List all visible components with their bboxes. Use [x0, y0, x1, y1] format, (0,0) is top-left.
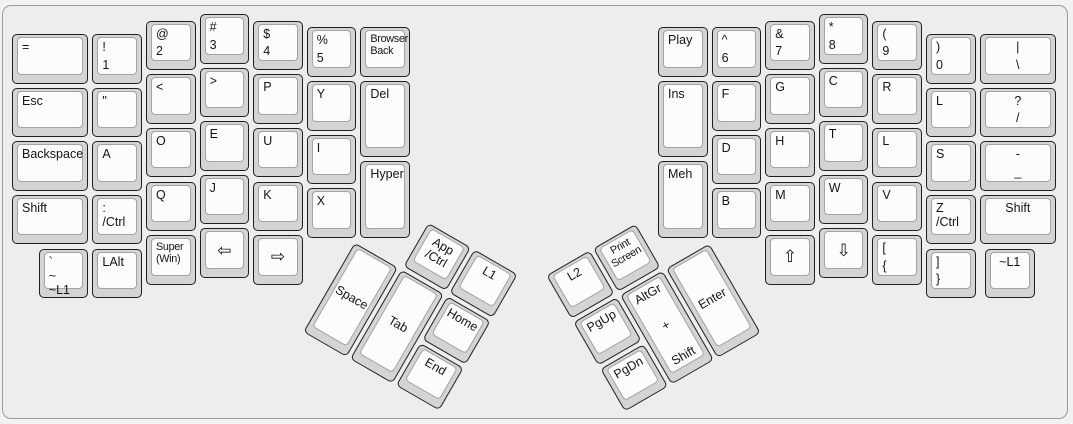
key-label: ⇨	[271, 247, 285, 266]
key-label: Meh	[668, 167, 692, 181]
key-backspace-face: Backspace	[17, 144, 83, 182]
key-l-middle[interactable]: L	[872, 128, 922, 178]
key-pipe-backslash-face: |\	[985, 37, 1051, 75]
key-7[interactable]: &7	[765, 21, 815, 71]
key-rbracket-brace-face: ]}	[931, 252, 971, 290]
key-label: H	[775, 134, 784, 148]
key-right-shift[interactable]: Shift	[980, 195, 1056, 245]
key-colon-ctrl-face: :/Ctrl	[97, 198, 137, 236]
key-label: (	[882, 27, 886, 41]
key-label: `	[49, 255, 53, 269]
key-left-shift[interactable]: Shift	[12, 195, 88, 245]
key-m-face: M	[770, 185, 810, 223]
key-s[interactable]: S	[926, 141, 976, 191]
key-lbracket-brace[interactable]: [{	[872, 235, 922, 285]
key-label: C	[829, 74, 838, 88]
key-6[interactable]: ^6	[712, 27, 762, 77]
key-x[interactable]: X	[307, 188, 357, 238]
key-q-face: Q	[151, 185, 191, 223]
key-arrow-up-face: ⇧	[770, 238, 810, 276]
key-label: %	[317, 33, 328, 47]
key-right-shift-face: Shift	[985, 198, 1051, 236]
key-p[interactable]: P	[253, 74, 303, 124]
key-3-face: #3	[205, 17, 245, 55]
key-label: ^	[722, 33, 728, 47]
key-label: +	[659, 317, 672, 333]
key-grave-l1-face: `~~L1	[44, 252, 84, 290]
key-arrow-up[interactable]: ⇧	[765, 235, 815, 285]
key-u[interactable]: U	[253, 128, 303, 178]
key-label: Ins	[668, 87, 685, 101]
key-h-face: H	[770, 131, 810, 169]
key-label: B	[722, 194, 730, 208]
key-play-face: Play	[663, 30, 703, 68]
key-o-face: O	[151, 131, 191, 169]
key-label: 9	[882, 44, 889, 58]
key-x-face: X	[312, 191, 352, 229]
key-label: |	[1016, 40, 1019, 54]
key-label: ~	[49, 269, 56, 283]
key-label: \	[1016, 58, 1019, 72]
key-r-face: R	[877, 77, 917, 115]
key-label: E	[210, 127, 218, 141]
key-w[interactable]: W	[819, 175, 869, 225]
key-meh-face: Meh	[663, 164, 703, 228]
key-esc-face: Esc	[17, 91, 83, 129]
key-a[interactable]: A	[92, 141, 142, 191]
key-meh[interactable]: Meh	[658, 161, 708, 237]
key-q[interactable]: Q	[146, 182, 196, 232]
key-label: _	[1014, 165, 1021, 179]
key-del[interactable]: Del	[360, 81, 410, 157]
key-label: Back	[370, 45, 393, 57]
key-tilde-l1[interactable]: ~L1	[985, 249, 1035, 299]
key-f-face: F	[717, 84, 757, 122]
key-lalt-face: LAlt	[97, 252, 137, 290]
key-w-face: W	[824, 178, 864, 216]
key-label: 5	[317, 51, 324, 65]
key-c-face: C	[824, 71, 864, 109]
key-label: *	[829, 20, 834, 34]
key-label: M	[775, 188, 785, 202]
key-p-face: P	[258, 77, 298, 115]
key-m[interactable]: M	[765, 182, 815, 232]
key-l-upper[interactable]: L	[926, 88, 976, 138]
key-i-face: I	[312, 138, 352, 176]
key-tilde-l1-face: ~L1	[990, 252, 1030, 290]
key-label: A	[102, 147, 110, 161]
key-label: )	[936, 40, 940, 54]
key-hyper[interactable]: Hyper	[360, 161, 410, 237]
key-label: :	[102, 201, 105, 215]
key-label: /Ctrl	[102, 215, 125, 229]
key-5-face: %5	[312, 30, 352, 68]
key-label: ⇩	[836, 241, 850, 260]
key-label: 8	[829, 38, 836, 52]
key-label: Super	[156, 241, 183, 253]
key-d-face: D	[717, 138, 757, 176]
key-g[interactable]: G	[765, 74, 815, 124]
key-greater-than[interactable]: >	[200, 68, 250, 118]
key-pipe-backslash[interactable]: |\	[980, 34, 1056, 84]
key-question-slash[interactable]: ?/	[980, 88, 1056, 138]
key-label: G	[775, 80, 785, 94]
key-label: Tab	[386, 313, 410, 335]
key-greater-than-face: >	[205, 71, 245, 109]
key-label: Q	[156, 188, 166, 202]
key-left-shift-face: Shift	[17, 198, 83, 236]
key-label: 0	[936, 58, 943, 72]
key-label: =	[22, 40, 29, 54]
key-l-upper-face: L	[931, 91, 971, 129]
key-y[interactable]: Y	[307, 81, 357, 131]
key-arrow-right-face: ⇨	[258, 238, 298, 276]
key-label: 1	[102, 58, 109, 72]
key-1-face: !1	[97, 37, 137, 75]
key-8[interactable]: *8	[819, 14, 869, 64]
key-9-face: (9	[877, 24, 917, 62]
key-label: 2	[156, 44, 163, 58]
key-7-face: &7	[770, 24, 810, 62]
key-0-face: )0	[931, 37, 971, 75]
key-z-ctrl[interactable]: Z/Ctrl	[926, 195, 976, 245]
key-arrow-left[interactable]: ⇦	[200, 228, 250, 278]
key-label: ]	[936, 255, 939, 269]
keyboard-layout-stage: =EscBackspaceShift!1"A:/Ctrl@2<OQ#3>EJ$4…	[0, 0, 1073, 424]
key-label: End	[423, 355, 449, 378]
key-9[interactable]: (9	[872, 21, 922, 71]
key-t-face: T	[824, 124, 864, 162]
key-b-face: B	[717, 191, 757, 229]
key-label: <	[156, 80, 163, 94]
key-label: 3	[210, 38, 217, 52]
key-label: Shift	[22, 201, 47, 215]
key-label: L2	[565, 265, 584, 284]
key-l-middle-face: L	[877, 131, 917, 169]
key-j[interactable]: J	[200, 175, 250, 225]
key-label: L	[936, 94, 943, 108]
key-6-face: ^6	[717, 30, 757, 68]
key-label: D	[722, 141, 731, 155]
key-label: U	[263, 134, 272, 148]
key-label: Shift	[1005, 201, 1030, 215]
key-label: K	[263, 188, 271, 202]
key-5[interactable]: %5	[307, 27, 357, 77]
key-label: S	[936, 147, 944, 161]
key-arrow-down-face: ⇩	[824, 231, 864, 269]
key-arrow-left-face: ⇦	[205, 231, 245, 269]
key-rbracket-brace[interactable]: ]}	[926, 249, 976, 299]
key-label: F	[722, 87, 730, 101]
key-label: >	[210, 74, 217, 88]
key-label: $	[263, 27, 270, 41]
key-label: J	[210, 181, 216, 195]
key-v-face: V	[877, 185, 917, 223]
key-label: }	[936, 272, 940, 286]
key-label: ⇦	[217, 241, 231, 260]
key-quote-face: "	[97, 91, 137, 129]
key-label: ?	[1014, 94, 1021, 108]
key-i[interactable]: I	[307, 135, 357, 185]
key-label: Del	[370, 87, 389, 101]
key-e-face: E	[205, 124, 245, 162]
key-browser-back[interactable]: BrowserBack	[360, 27, 410, 77]
key-h[interactable]: H	[765, 128, 815, 178]
key-label: AltGr	[632, 281, 664, 307]
key-label: R	[882, 80, 891, 94]
key-label: Hyper	[370, 167, 403, 181]
key-label: Z	[936, 201, 944, 215]
key-y-face: Y	[312, 84, 352, 122]
key-ins[interactable]: Ins	[658, 81, 708, 157]
key-s-face: S	[931, 144, 971, 182]
key-label: "	[102, 94, 106, 108]
key-label: ~L1	[999, 255, 1020, 269]
key-u-face: U	[258, 131, 298, 169]
key-minus-underscore-face: -_	[985, 144, 1051, 182]
key-label: [	[882, 241, 885, 255]
key-label: V	[882, 188, 890, 202]
key-label: Enter	[695, 285, 728, 312]
key-b[interactable]: B	[712, 188, 762, 238]
key-super-win-face: Super(Win)	[151, 238, 191, 276]
key-label: Y	[317, 87, 325, 101]
key-arrow-right[interactable]: ⇨	[253, 235, 303, 285]
key-label: 7	[775, 44, 782, 58]
key-g-face: G	[770, 77, 810, 115]
key-label: P	[263, 80, 271, 94]
key-z-ctrl-face: Z/Ctrl	[931, 198, 971, 236]
key-label: -	[1016, 147, 1020, 161]
key-label: Play	[668, 33, 692, 47]
key-r[interactable]: R	[872, 74, 922, 124]
key-0[interactable]: )0	[926, 34, 976, 84]
key-browser-back-face: BrowserBack	[365, 30, 405, 68]
key-esc[interactable]: Esc	[12, 88, 88, 138]
key-arrow-down[interactable]: ⇩	[819, 228, 869, 278]
key-del-face: Del	[365, 84, 405, 148]
key-j-face: J	[205, 178, 245, 216]
key-label: LAlt	[102, 255, 124, 269]
key-question-slash-face: ?/	[985, 91, 1051, 129]
key-e[interactable]: E	[200, 121, 250, 171]
key-2[interactable]: @2	[146, 21, 196, 71]
key-d[interactable]: D	[712, 135, 762, 185]
key-label: !	[102, 40, 105, 54]
key-label: Shift	[669, 344, 698, 369]
key-grave-l1[interactable]: `~~L1	[39, 249, 89, 299]
key-label: O	[156, 134, 166, 148]
key-label: X	[317, 194, 325, 208]
key-label: /Ctrl	[936, 215, 959, 229]
key-less-than-face: <	[151, 77, 191, 115]
key-label: Backspace	[22, 147, 83, 161]
key-k[interactable]: K	[253, 182, 303, 232]
key-hyper-face: Hyper	[365, 164, 405, 228]
key-label: L1	[480, 264, 499, 283]
key-label: ⇧	[783, 247, 797, 266]
key-label: ~L1	[49, 283, 70, 297]
key-k-face: K	[258, 185, 298, 223]
key-lalt[interactable]: LAlt	[92, 249, 142, 299]
key-quote[interactable]: "	[92, 88, 142, 138]
key-label: /	[1016, 111, 1019, 125]
key-v[interactable]: V	[872, 182, 922, 232]
key-minus-underscore[interactable]: -_	[980, 141, 1056, 191]
key-label: T	[829, 127, 837, 141]
key-label: L	[882, 134, 889, 148]
key-a-face: A	[97, 144, 137, 182]
key-play[interactable]: Play	[658, 27, 708, 77]
key-label: {	[882, 259, 886, 273]
key-equals-face: =	[17, 37, 83, 75]
key-3[interactable]: #3	[200, 14, 250, 64]
key-4[interactable]: $4	[253, 21, 303, 71]
key-label: #	[210, 20, 217, 34]
key-label: (Win)	[156, 253, 180, 265]
key-c[interactable]: C	[819, 68, 869, 118]
key-label: Space	[333, 282, 371, 312]
key-o[interactable]: O	[146, 128, 196, 178]
key-4-face: $4	[258, 24, 298, 62]
key-label: W	[829, 181, 841, 195]
key-8-face: *8	[824, 17, 864, 55]
key-super-win[interactable]: Super(Win)	[146, 235, 196, 285]
key-label: @	[156, 27, 169, 41]
key-f[interactable]: F	[712, 81, 762, 131]
key-label: 4	[263, 44, 270, 58]
key-ins-face: Ins	[663, 84, 703, 148]
key-equals[interactable]: =	[12, 34, 88, 84]
key-2-face: @2	[151, 24, 191, 62]
key-1[interactable]: !1	[92, 34, 142, 84]
key-label: I	[317, 141, 320, 155]
key-label: &	[775, 27, 783, 41]
key-lbracket-brace-face: [{	[877, 238, 917, 276]
key-label: 6	[722, 51, 729, 65]
key-colon-ctrl[interactable]: :/Ctrl	[92, 195, 142, 245]
key-backspace[interactable]: Backspace	[12, 141, 88, 191]
key-t[interactable]: T	[819, 121, 869, 171]
key-label: Browser	[370, 33, 408, 45]
key-less-than[interactable]: <	[146, 74, 196, 124]
key-label: Esc	[22, 94, 43, 108]
